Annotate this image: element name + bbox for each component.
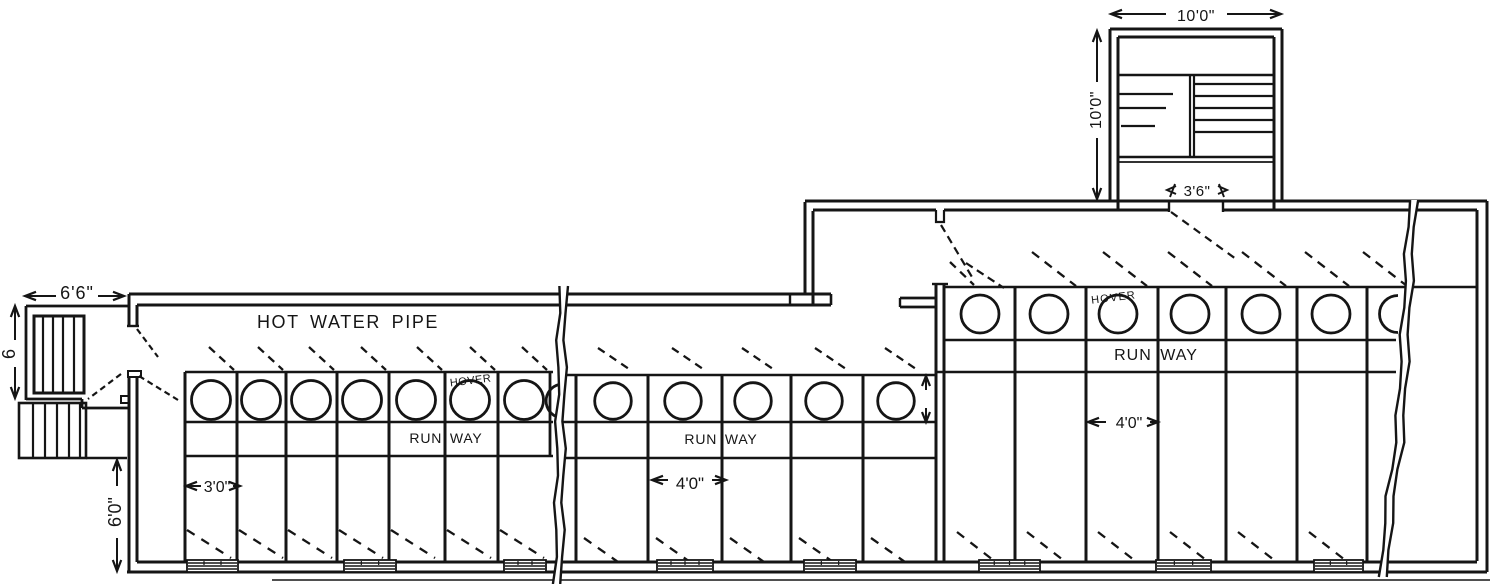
svg-text:HOT WATER PIPE: HOT WATER PIPE	[257, 312, 439, 332]
svg-text:6: 6	[0, 349, 19, 359]
svg-text:4'0": 4'0"	[676, 474, 704, 493]
svg-text:10'0": 10'0"	[1088, 91, 1105, 129]
svg-text:3'0": 3'0"	[204, 479, 231, 496]
svg-text:4'0": 4'0"	[1116, 415, 1143, 432]
svg-text:RUN WAY: RUN WAY	[684, 431, 757, 447]
svg-text:6'6": 6'6"	[60, 283, 94, 303]
svg-text:RUN WAY: RUN WAY	[409, 430, 482, 446]
svg-text:6'0": 6'0"	[105, 497, 125, 527]
svg-text:10'0": 10'0"	[1177, 8, 1215, 25]
svg-text:3'6": 3'6"	[1184, 183, 1211, 200]
svg-text:RUN WAY: RUN WAY	[1114, 347, 1198, 364]
